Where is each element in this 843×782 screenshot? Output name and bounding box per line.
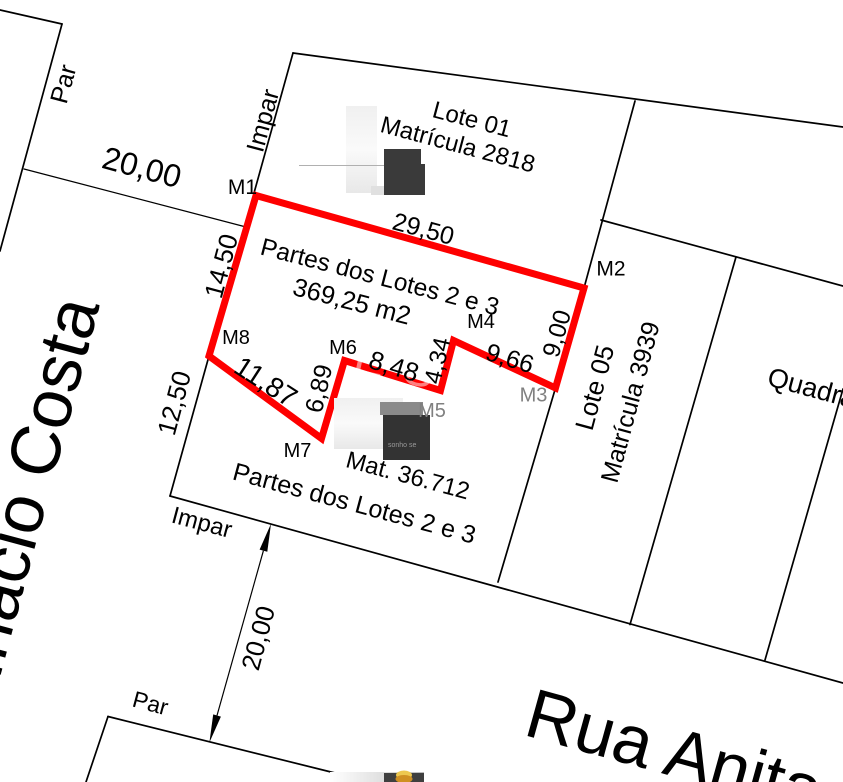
svg-text:M1: M1 xyxy=(228,176,257,199)
svg-text:M6: M6 xyxy=(329,337,357,359)
svg-text:M8: M8 xyxy=(222,327,250,349)
svg-text:M7: M7 xyxy=(284,440,312,462)
svg-text:M4: M4 xyxy=(467,311,495,333)
svg-text:M2: M2 xyxy=(596,257,625,280)
svg-text:M5: M5 xyxy=(418,400,446,422)
svg-text:sonho se: sonho se xyxy=(388,442,417,449)
svg-text:M3: M3 xyxy=(520,385,548,407)
